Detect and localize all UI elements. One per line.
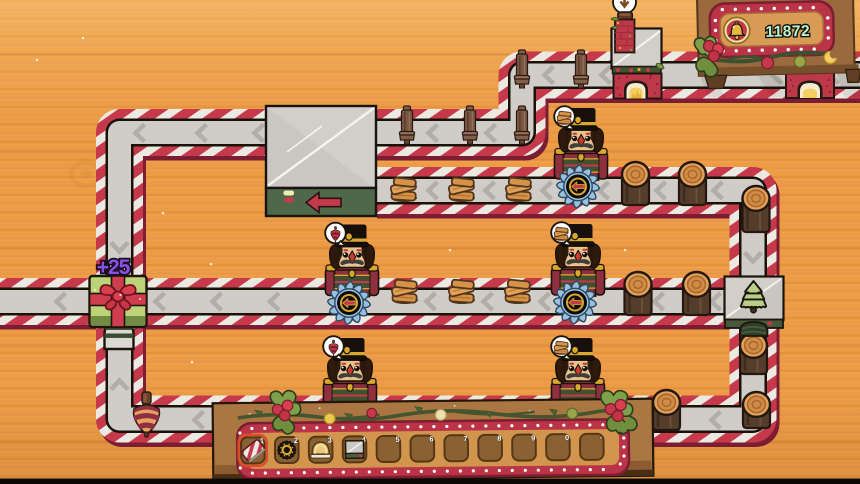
svg-text:9: 9 — [531, 433, 535, 442]
svg-text:8: 8 — [497, 434, 501, 443]
svg-text:5: 5 — [395, 435, 399, 444]
svg-text:3: 3 — [328, 436, 332, 445]
svg-text:0: 0 — [565, 433, 569, 442]
svg-text:6: 6 — [429, 434, 433, 443]
svg-text:11872: 11872 — [765, 23, 810, 41]
svg-text:7: 7 — [463, 434, 467, 443]
svg-text:2: 2 — [294, 436, 298, 445]
svg-text:+25: +25 — [97, 256, 131, 279]
